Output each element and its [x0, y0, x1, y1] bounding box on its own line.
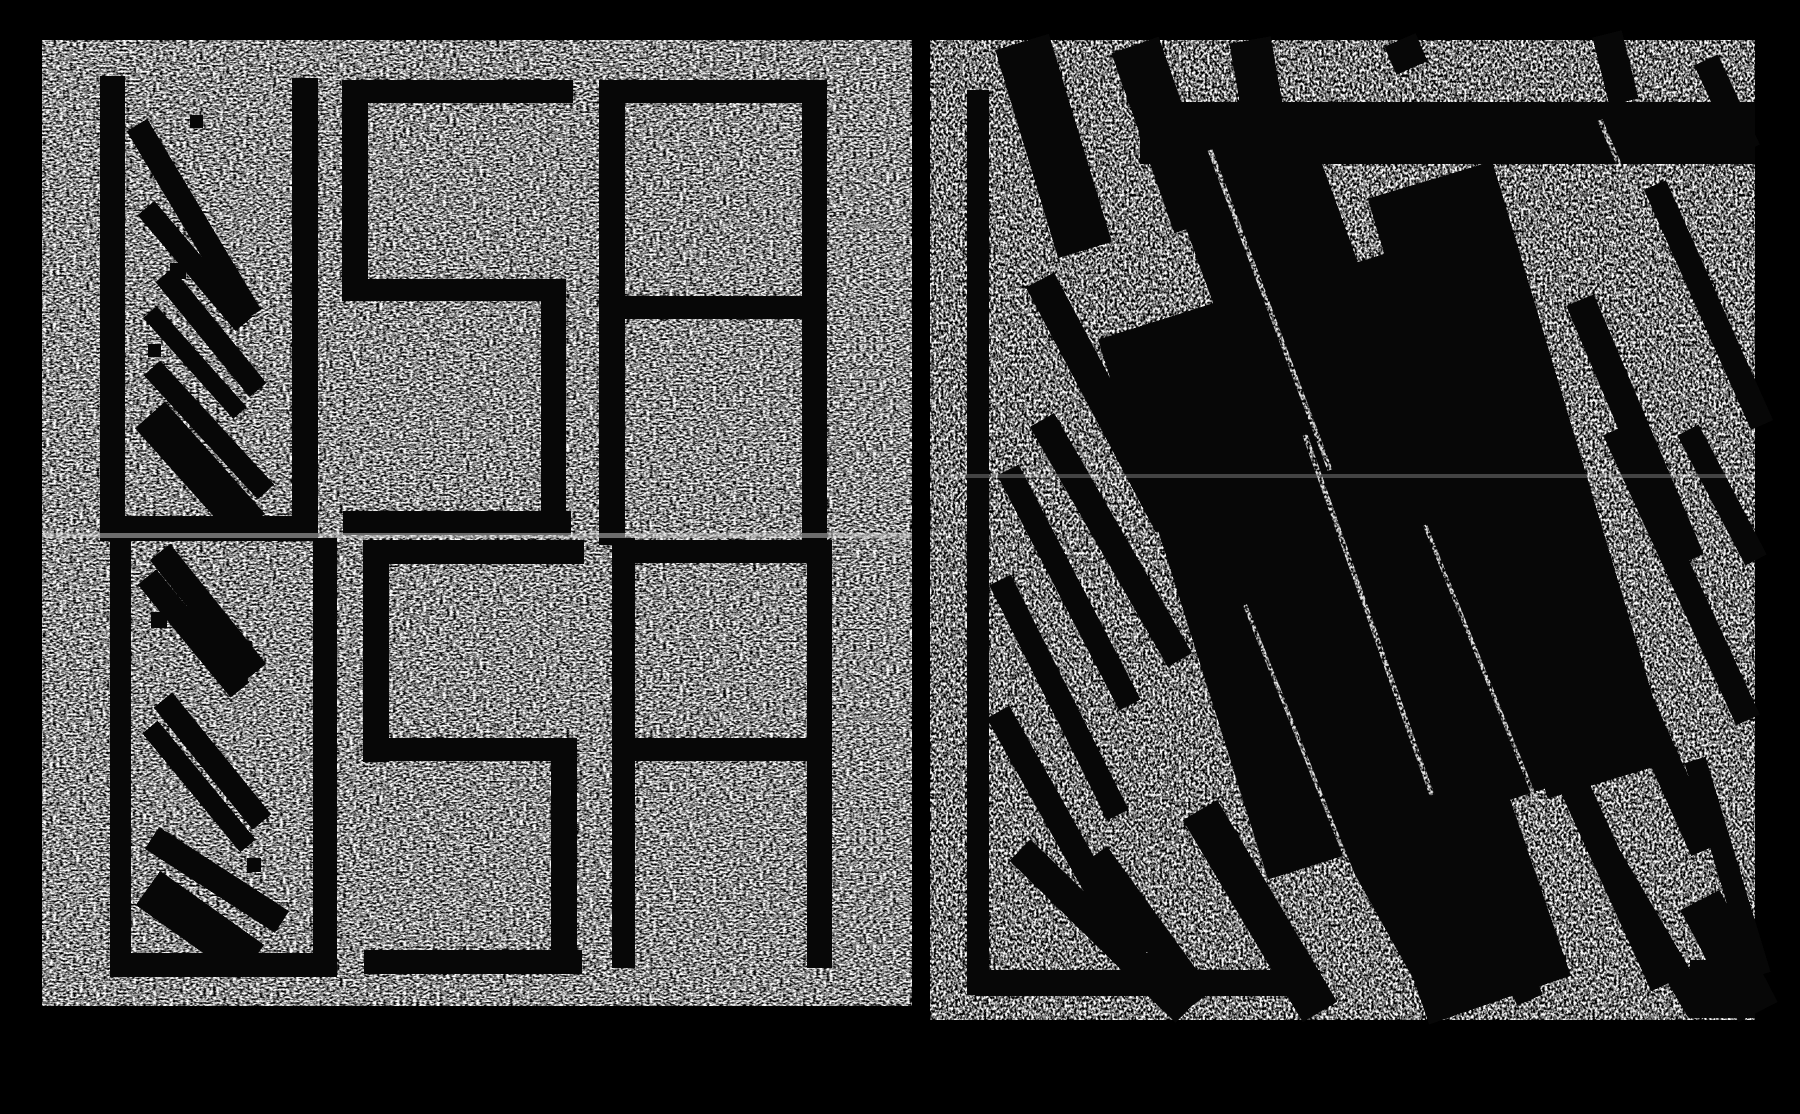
artwork-frame: USA diptych print — left panel with sten… — [0, 0, 1800, 1114]
artwork-canvas: USA diptych print — left panel with sten… — [0, 0, 1800, 1114]
left-panel — [42, 40, 912, 1006]
right-panel — [930, 30, 1778, 1024]
